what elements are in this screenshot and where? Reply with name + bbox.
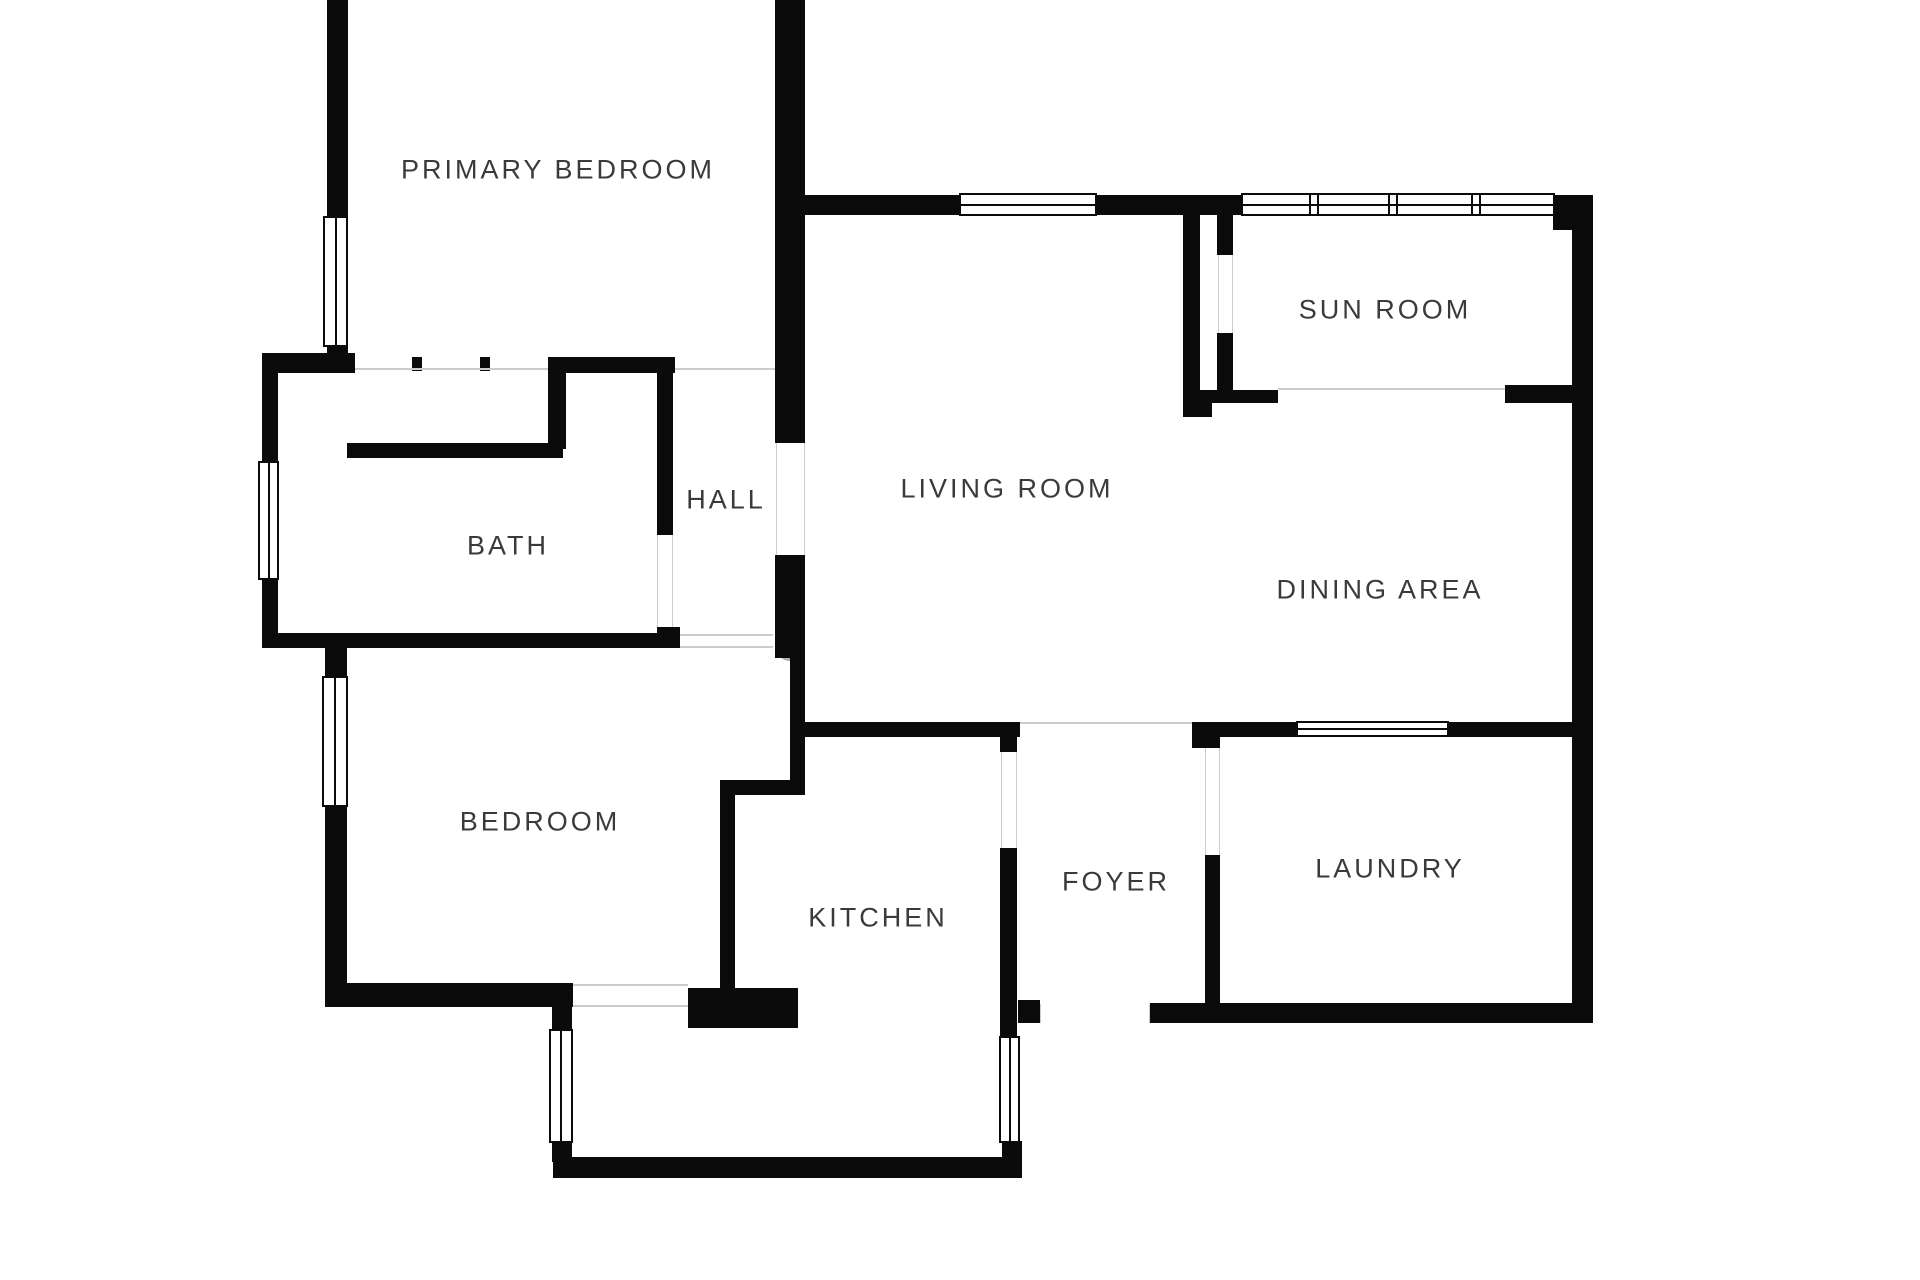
opening-line xyxy=(1278,388,1505,390)
wall-segment xyxy=(1217,213,1233,255)
opening-line xyxy=(680,646,773,648)
wall-segment xyxy=(805,195,961,215)
wall-segment xyxy=(262,633,680,648)
window-symbol xyxy=(549,1029,573,1143)
room-label-bedroom: BEDROOM xyxy=(460,807,621,838)
wall-segment xyxy=(1095,195,1243,215)
window-mullion xyxy=(1388,195,1390,214)
opening-line xyxy=(804,443,805,555)
wall-segment xyxy=(553,1157,1022,1178)
wall-segment xyxy=(1447,722,1572,737)
wall-segment xyxy=(325,983,573,1007)
room-label-kitchen: KITCHEN xyxy=(808,903,948,934)
wall-segment xyxy=(720,780,735,988)
wall-segment xyxy=(1205,855,1220,1005)
wall-segment xyxy=(790,722,1020,737)
room-label-laundry: LAUNDRY xyxy=(1315,854,1465,885)
wall-segment xyxy=(688,988,798,1028)
wall-segment xyxy=(775,555,805,658)
opening-line xyxy=(1016,752,1017,848)
wall-segment xyxy=(548,373,566,449)
wall-segment xyxy=(325,805,347,1007)
wall-segment xyxy=(327,0,348,220)
room-label-foyer: FOYER xyxy=(1062,867,1170,898)
window-mullion xyxy=(1309,195,1311,214)
wall-segment xyxy=(548,357,675,373)
wall-segment xyxy=(1217,333,1233,390)
wall-segment xyxy=(657,373,673,535)
window-symbol xyxy=(999,1036,1020,1143)
window-glass-line xyxy=(1243,204,1553,206)
opening-line xyxy=(1219,748,1220,855)
wall-segment xyxy=(1183,213,1200,415)
wall-segment xyxy=(1000,848,1017,1038)
window-glass-line xyxy=(334,678,336,805)
opening-line xyxy=(672,535,673,627)
wall-segment xyxy=(262,373,278,463)
wall-segment xyxy=(775,0,805,443)
window-glass-line xyxy=(1009,1038,1011,1141)
room-label-dining-area: DINING AREA xyxy=(1276,575,1483,606)
opening-line xyxy=(1040,1004,1041,1023)
room-label-primary-bedroom: PRIMARY BEDROOM xyxy=(401,155,715,186)
wall-segment xyxy=(1553,195,1593,230)
wall-segment xyxy=(1505,385,1572,403)
opening-line xyxy=(1205,748,1206,855)
room-label-hall: HALL xyxy=(686,485,766,516)
window-glass-line xyxy=(560,1031,562,1141)
opening-line xyxy=(1232,255,1233,333)
window-symbol xyxy=(1241,193,1555,216)
wall-segment xyxy=(1002,1141,1022,1163)
wall-segment xyxy=(262,353,355,373)
room-label-bath: BATH xyxy=(467,531,549,562)
opening-line xyxy=(776,443,777,555)
window-glass-line xyxy=(1298,728,1447,730)
window-symbol xyxy=(322,676,348,807)
opening-line xyxy=(573,1005,688,1007)
wall-segment xyxy=(1572,195,1593,1023)
window-mullion xyxy=(1479,195,1481,214)
room-label-sun-room: SUN ROOM xyxy=(1299,295,1472,326)
window-glass-line xyxy=(268,463,270,578)
window-symbol xyxy=(1296,721,1449,737)
opening-line xyxy=(573,984,688,986)
wall-segment xyxy=(657,627,680,648)
opening-line xyxy=(1149,1004,1150,1023)
opening-line xyxy=(355,368,548,370)
opening-line xyxy=(1020,722,1192,724)
wall-segment xyxy=(1150,1003,1593,1023)
opening-line xyxy=(675,368,775,370)
wall-segment xyxy=(347,443,563,458)
window-mullion xyxy=(1317,195,1319,214)
opening-line xyxy=(680,634,773,636)
window-symbol xyxy=(959,193,1097,216)
window-glass-line xyxy=(335,218,337,345)
opening-line xyxy=(657,535,658,627)
window-symbol xyxy=(323,216,348,347)
wall-segment xyxy=(1212,390,1278,403)
opening-line xyxy=(1001,752,1002,848)
room-label-living-room: LIVING ROOM xyxy=(900,474,1113,505)
wall-segment xyxy=(552,1007,572,1031)
window-mullion xyxy=(1471,195,1473,214)
floor-plan-canvas: PRIMARY BEDROOM SUN ROOM LIVING ROOM HAL… xyxy=(0,0,1920,1280)
opening-line xyxy=(1218,255,1219,333)
wall-segment xyxy=(1193,722,1298,737)
window-glass-line xyxy=(961,204,1095,206)
wall-segment xyxy=(1000,737,1017,752)
wall-segment xyxy=(790,658,805,795)
window-mullion xyxy=(1396,195,1398,214)
wall-segment xyxy=(1183,390,1212,417)
wall-segment xyxy=(325,648,347,678)
wall-segment xyxy=(1018,1000,1040,1023)
window-symbol xyxy=(258,461,279,580)
